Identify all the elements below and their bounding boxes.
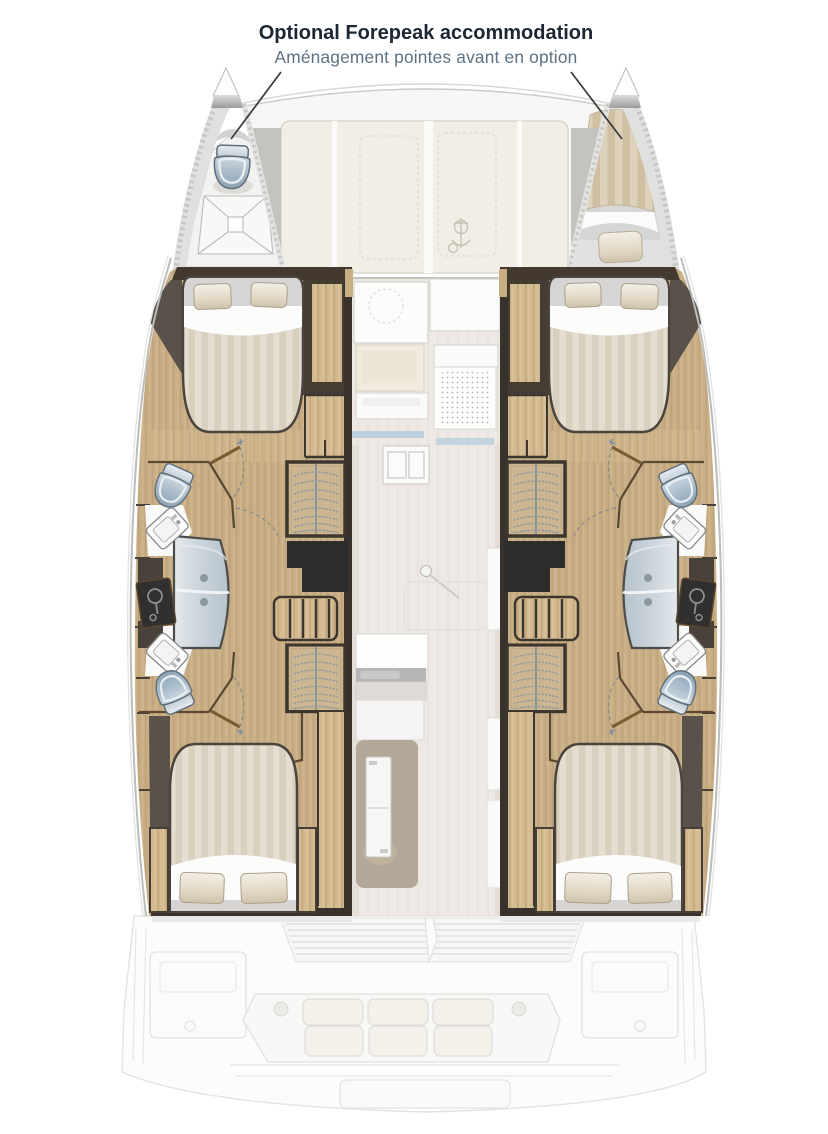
svg-text:Optional Forepeak accommodatio: Optional Forepeak accommodation bbox=[259, 22, 594, 44]
svg-text:Aménagement pointes avant en o: Aménagement pointes avant en option bbox=[275, 47, 578, 67]
